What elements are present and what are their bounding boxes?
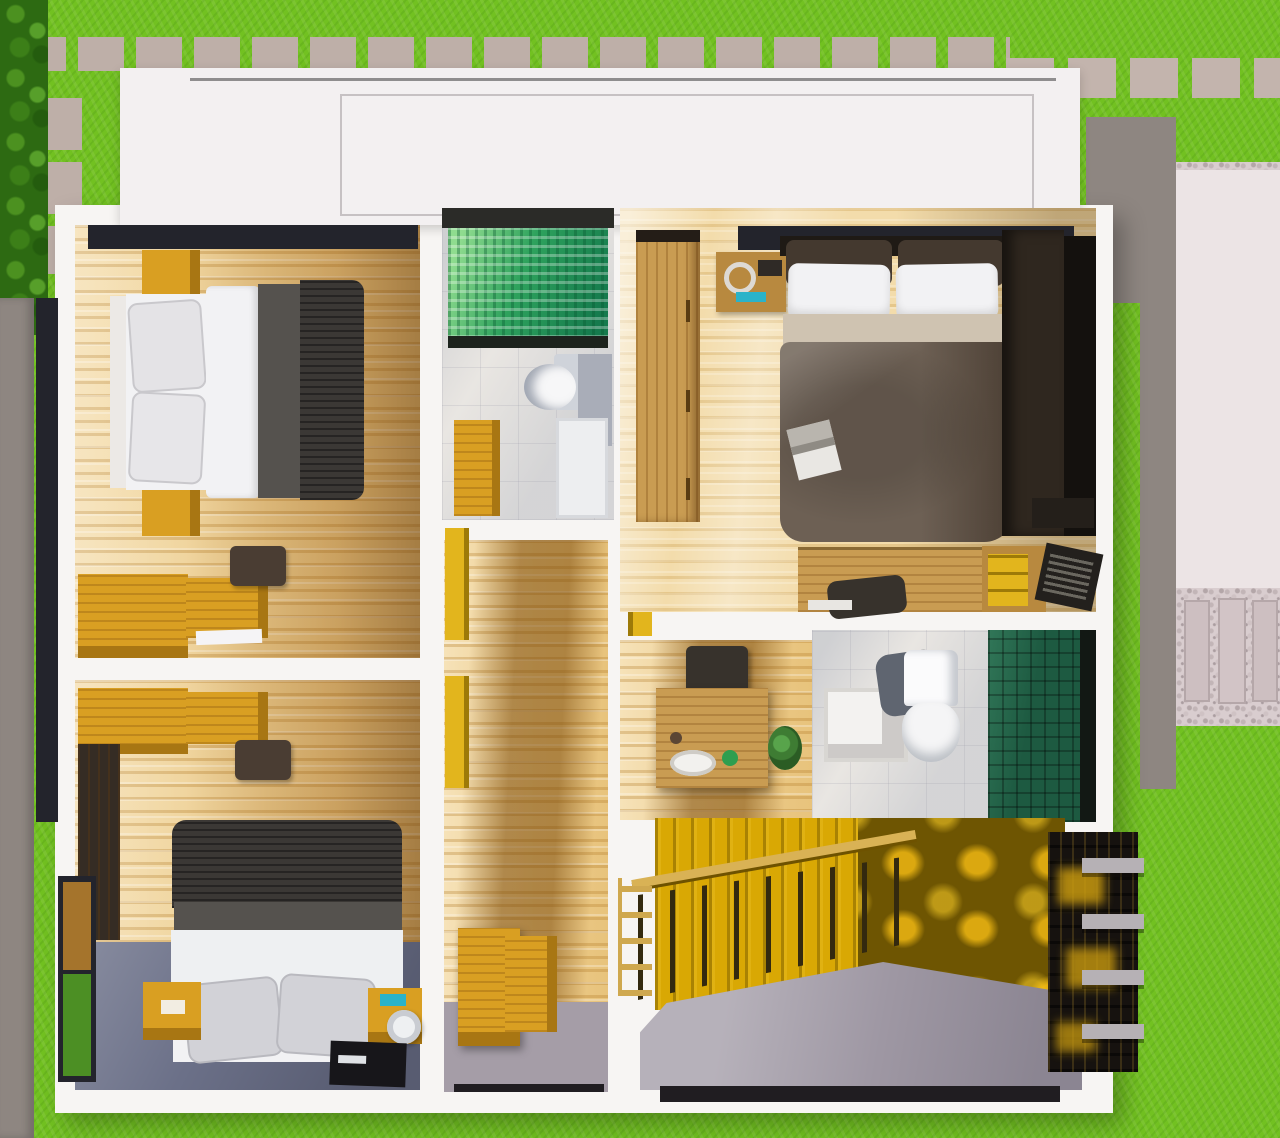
speaker: [387, 1010, 421, 1044]
laptop-keys: [1043, 552, 1094, 600]
gravel-paver: [1218, 598, 1246, 704]
pillow: [127, 299, 207, 394]
pergola-beam: [1082, 914, 1144, 929]
drawer-handle: [161, 1000, 185, 1014]
clothes-rack: [1064, 236, 1096, 536]
bedroom-top-left: [75, 225, 420, 658]
green-mosaic-shower: [448, 228, 608, 338]
flat-roof: [120, 68, 1080, 225]
bed-blanket-dark: [172, 820, 402, 908]
desk: [78, 574, 188, 658]
stair-lower-railing: [618, 878, 652, 996]
drawer-fronts: [988, 554, 1028, 606]
floor-plan-render: [0, 0, 1280, 1138]
glass-partition: [448, 336, 608, 348]
wash-counter: [656, 688, 768, 788]
wash-nook: [620, 640, 812, 820]
plant: [768, 726, 802, 770]
window-glass-garden: [63, 974, 91, 1076]
soap-green: [722, 750, 738, 766]
gravel-path-section: [1176, 588, 1280, 726]
pergola-beam: [1082, 858, 1144, 873]
master-bedroom: [620, 208, 1096, 612]
roof-inner-frame: [340, 94, 1034, 216]
paver-walkway-top: [20, 37, 1010, 71]
window-glass-wood: [63, 882, 91, 970]
desk-chair: [826, 574, 908, 620]
shower-top-band: [442, 208, 614, 228]
window-band: [88, 225, 418, 249]
toiletry-dark: [670, 732, 682, 744]
floor-edge-dark: [454, 1084, 604, 1092]
wardrobe-handle: [686, 390, 690, 412]
bathroom-2: [812, 630, 1096, 822]
gadget-cyan: [380, 994, 406, 1006]
white-fixture: [556, 418, 608, 518]
vanity-cabinet: [454, 420, 500, 516]
concrete-strip-right: [1140, 117, 1176, 789]
wardrobe-handle: [686, 478, 690, 500]
sink: [670, 750, 716, 776]
toilet-bowl: [524, 364, 576, 410]
wood-wardrobe: [636, 230, 700, 522]
built-in-cabinet-door: [445, 676, 469, 788]
landing-edge-dark: [660, 1086, 1060, 1102]
left-facade-glass: [36, 298, 58, 822]
bed-sheet-fold: [206, 286, 260, 498]
notebook-cyan: [736, 292, 766, 302]
tv-detail: [338, 1055, 366, 1064]
roof-parapet-line: [190, 78, 1056, 81]
boundary-wall-left: [0, 298, 34, 1138]
pillow: [128, 391, 207, 485]
louver-glow: [1058, 868, 1104, 904]
pergola-beam: [1082, 970, 1144, 985]
gravel-paver: [1252, 600, 1278, 702]
pillow: [896, 263, 999, 321]
wardrobe-handle: [686, 300, 690, 322]
bedroom-bottom-left: [75, 680, 420, 1090]
alarm-clock: [724, 262, 756, 294]
bed-headboard: [110, 296, 126, 488]
toilet-bowl: [902, 702, 960, 762]
pillow: [788, 263, 891, 321]
bathroom-1: [442, 208, 614, 520]
bed-blanket-dark: [300, 280, 364, 500]
shower-glass-wall: [1080, 630, 1096, 822]
bed-blanket-gray: [258, 284, 302, 498]
amber-dresser-tier: [505, 936, 557, 1032]
built-in-cabinet-door: [445, 528, 469, 640]
toilet-tank: [904, 650, 958, 706]
drawer-unit: [982, 546, 1046, 612]
nightstand: [143, 982, 201, 1040]
tv-unit: [329, 1041, 406, 1088]
bed-bench: [1032, 498, 1094, 528]
green-tiled-shower: [988, 630, 1080, 822]
stool: [230, 546, 286, 586]
keyboard: [808, 600, 852, 610]
hedge-row: [0, 0, 48, 335]
desk-return: [186, 692, 268, 744]
wardrobe-cap: [636, 230, 700, 242]
stool: [686, 646, 748, 694]
desk-item-dark: [758, 260, 782, 276]
stool: [235, 740, 291, 780]
dark-wardrobe: [1002, 230, 1064, 536]
bedroom-window: [58, 876, 96, 1082]
nightstand: [716, 252, 786, 312]
pergola-beam: [1082, 1024, 1144, 1039]
laptop: [1035, 543, 1104, 612]
gravel-paver: [1184, 600, 1210, 702]
paper-sheet: [196, 629, 262, 645]
